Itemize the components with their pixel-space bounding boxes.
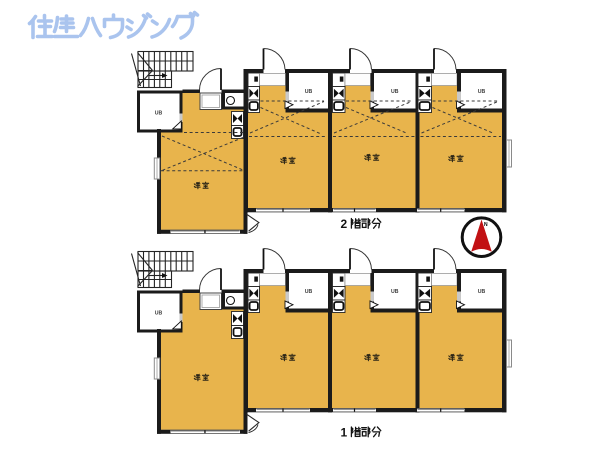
svg-text:UB: UB — [478, 289, 486, 295]
svg-text:UB: UB — [155, 311, 163, 317]
svg-text:UB: UB — [305, 89, 313, 95]
svg-text:UB: UB — [478, 89, 486, 95]
svg-text:UB: UB — [391, 289, 399, 295]
svg-text:N: N — [484, 222, 488, 228]
svg-text:UB: UB — [305, 289, 313, 295]
svg-text:UB: UB — [155, 111, 163, 117]
svg-text:2: 2 — [341, 217, 348, 231]
svg-text:1: 1 — [341, 426, 348, 440]
svg-text:UB: UB — [391, 89, 399, 95]
